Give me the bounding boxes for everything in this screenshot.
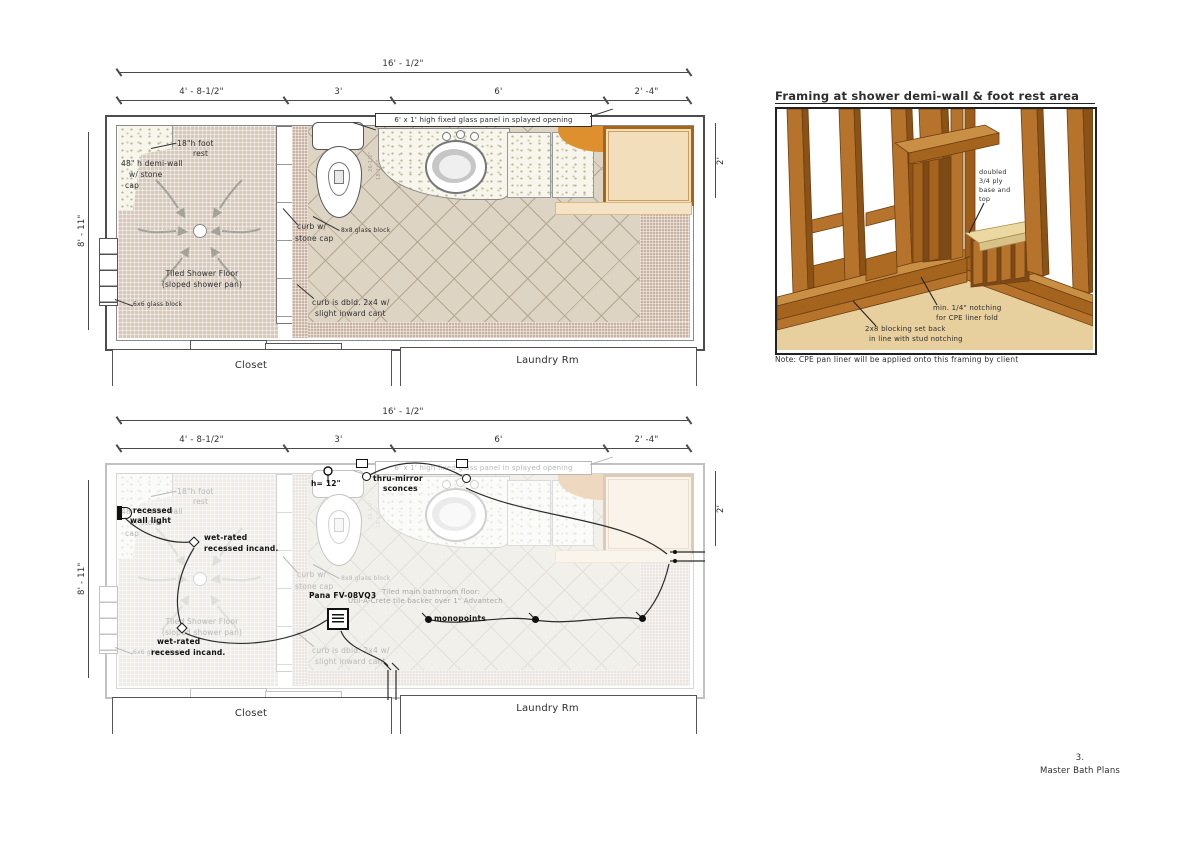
segment-dim-line bbox=[118, 100, 688, 101]
wet-rated-label: recessed incand. bbox=[204, 545, 279, 553]
wet-rated-label: wet-rated bbox=[157, 638, 200, 646]
framing-viewport: doubled 3/4 ply base and top min. 1/4" n… bbox=[775, 107, 1097, 355]
notch-note: min. 1/4" notching bbox=[933, 305, 1002, 312]
monopoint-symbol bbox=[425, 616, 432, 623]
wall-light-label: wall light bbox=[130, 517, 171, 525]
page-label: 3. Master Bath Plans bbox=[1015, 752, 1145, 778]
segment-dim-label: 4' - 8-1/2" bbox=[118, 88, 285, 97]
wall-light-label: recessed bbox=[133, 507, 172, 515]
segment-dim-label: 2' -4" bbox=[605, 88, 688, 97]
sheet: 6' x 1' high fixed glass panel in splaye… bbox=[0, 0, 1200, 847]
ply-note: base and bbox=[979, 187, 1010, 194]
floor-note: Tiled main bathroom floor: bbox=[382, 589, 480, 596]
notch-note: for CPE liner fold bbox=[936, 315, 998, 322]
plan-top: 6' x 1' high fixed glass panel in splaye… bbox=[85, 56, 730, 401]
framing-note: Note: CPE pan liner will be applied onto… bbox=[775, 356, 1018, 364]
overall-dim-label: 16' - 1/2" bbox=[118, 60, 688, 69]
wiring bbox=[85, 404, 730, 749]
thru-mirror-label: thru-mirror bbox=[373, 475, 423, 483]
ply-note: 3/4 ply bbox=[979, 178, 1003, 185]
plan-dimensions-layer: 16' - 1/2" 4' - 8-1/2" 3' 6' 2' -4" 8' -… bbox=[85, 56, 730, 401]
sconce-symbol bbox=[356, 459, 368, 468]
plan-bottom: 6' x 1' high fixed glass panel in splaye… bbox=[85, 404, 730, 749]
blocking-note: 2x8 blocking set back bbox=[865, 326, 946, 333]
thru-mirror-label: sconces bbox=[383, 485, 418, 493]
ply-note: top bbox=[979, 196, 990, 203]
right-dim-label: 2' bbox=[717, 123, 726, 198]
segment-dim-label: 3' bbox=[285, 88, 392, 97]
sconce-symbol bbox=[362, 472, 371, 481]
laundry-label: Laundry Rm bbox=[400, 356, 695, 367]
page-number: 3. bbox=[1015, 752, 1145, 765]
left-dim-label: 8' - 11" bbox=[78, 132, 87, 330]
monopoints-label: monopoints bbox=[434, 615, 486, 623]
floor-note: Util-A-Crete tile backer over 1" Advante… bbox=[348, 598, 503, 605]
segment-dim-label: 6' bbox=[392, 88, 605, 97]
wet-rated-label: recessed incand. bbox=[151, 649, 226, 657]
monopoint-symbol bbox=[532, 616, 539, 623]
blocking-note: in line with stud notching bbox=[869, 336, 963, 343]
page-title: Master Bath Plans bbox=[1015, 765, 1145, 778]
exhaust-fan-symbol bbox=[327, 608, 349, 630]
sconce-height-label: h= 12" bbox=[311, 480, 341, 488]
monopoint-symbol bbox=[639, 615, 646, 622]
framing-isometric bbox=[777, 109, 1093, 350]
sconce-symbol bbox=[462, 474, 471, 483]
overall-dim-line bbox=[118, 72, 688, 73]
left-dim-line bbox=[88, 132, 89, 330]
plan-electrical-layer: h= 12" thru-mirror sconces recessed wall… bbox=[85, 404, 730, 749]
closet-label: Closet bbox=[112, 361, 390, 372]
ply-note: doubled bbox=[979, 169, 1007, 176]
laundry-room bbox=[400, 347, 697, 386]
framing-title: Framing at shower demi-wall & foot rest … bbox=[775, 90, 1095, 104]
fan-grille-icon bbox=[332, 614, 344, 624]
sconce-symbol bbox=[456, 459, 468, 468]
framing-detail: Framing at shower demi-wall & foot rest … bbox=[770, 90, 1100, 380]
wet-rated-label: wet-rated bbox=[204, 534, 247, 542]
